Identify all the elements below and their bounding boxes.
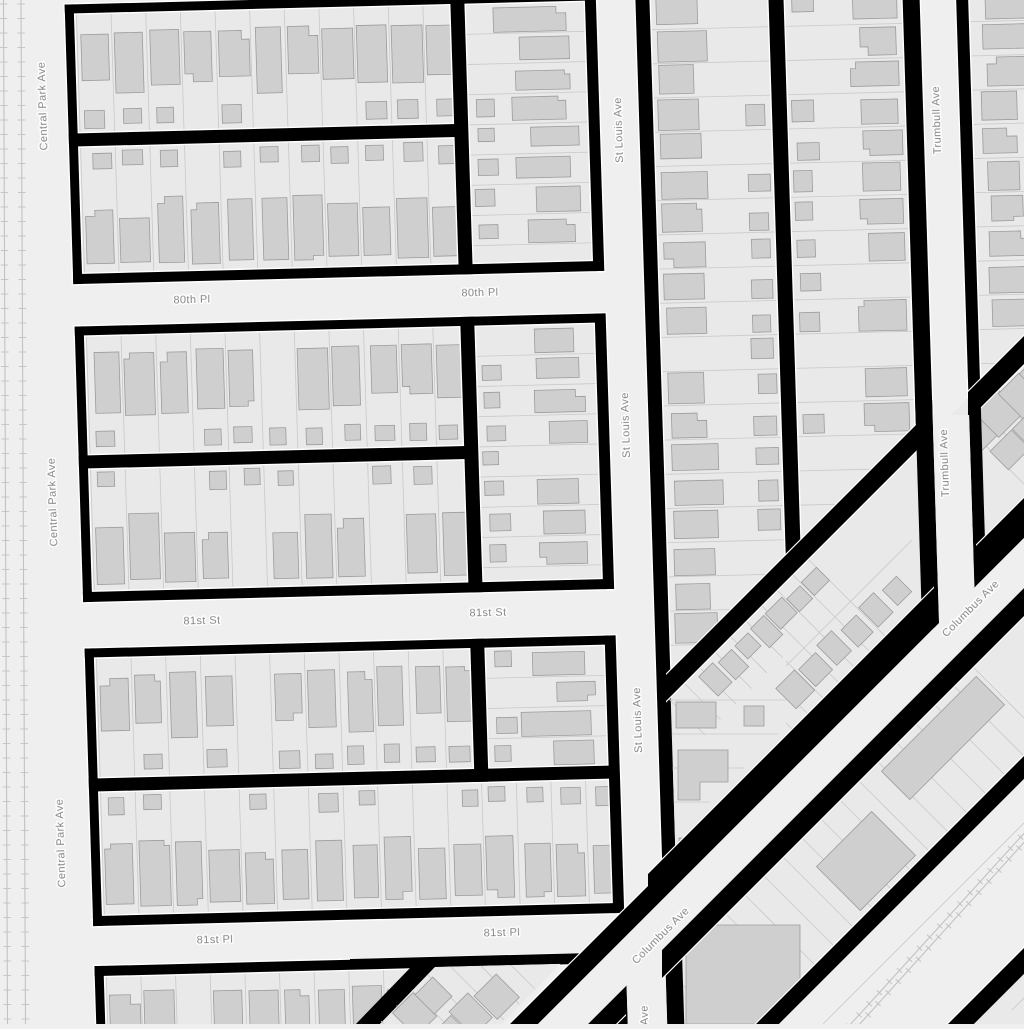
svg-text:St Louis Ave: St Louis Ave xyxy=(619,392,633,458)
svg-text:St Louis Ave: St Louis Ave xyxy=(638,1005,652,1024)
svg-text:St Louis Ave: St Louis Ave xyxy=(631,687,645,753)
svg-text:Trumbull Ave: Trumbull Ave xyxy=(930,86,944,155)
svg-text:81st St: 81st St xyxy=(183,615,220,628)
svg-text:St Louis Ave: St Louis Ave xyxy=(612,97,626,163)
svg-text:81st Pl: 81st Pl xyxy=(197,934,234,947)
svg-text:80th Pl: 80th Pl xyxy=(461,287,498,300)
svg-text:80th Pl: 80th Pl xyxy=(173,294,210,307)
svg-text:81st St: 81st St xyxy=(469,607,506,620)
svg-text:Trumbull Ave: Trumbull Ave xyxy=(938,429,952,498)
svg-text:81st Pl: 81st Pl xyxy=(484,927,521,940)
